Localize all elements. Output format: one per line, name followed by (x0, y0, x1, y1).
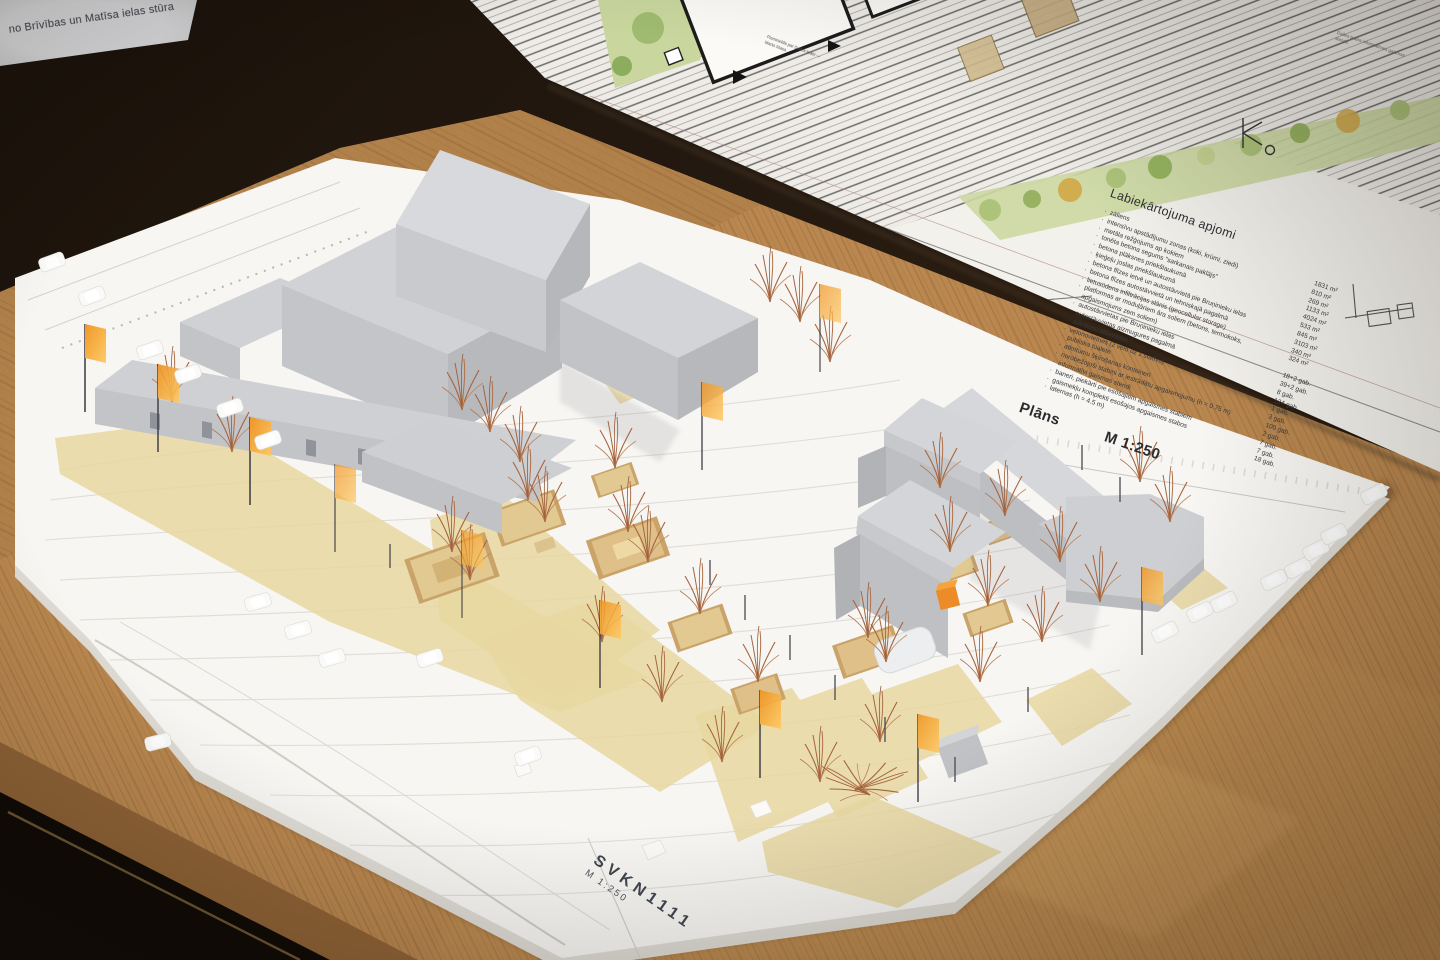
photo-scene: no Brīvības un Matīsa ielas stūra Labiek… (0, 0, 1440, 960)
